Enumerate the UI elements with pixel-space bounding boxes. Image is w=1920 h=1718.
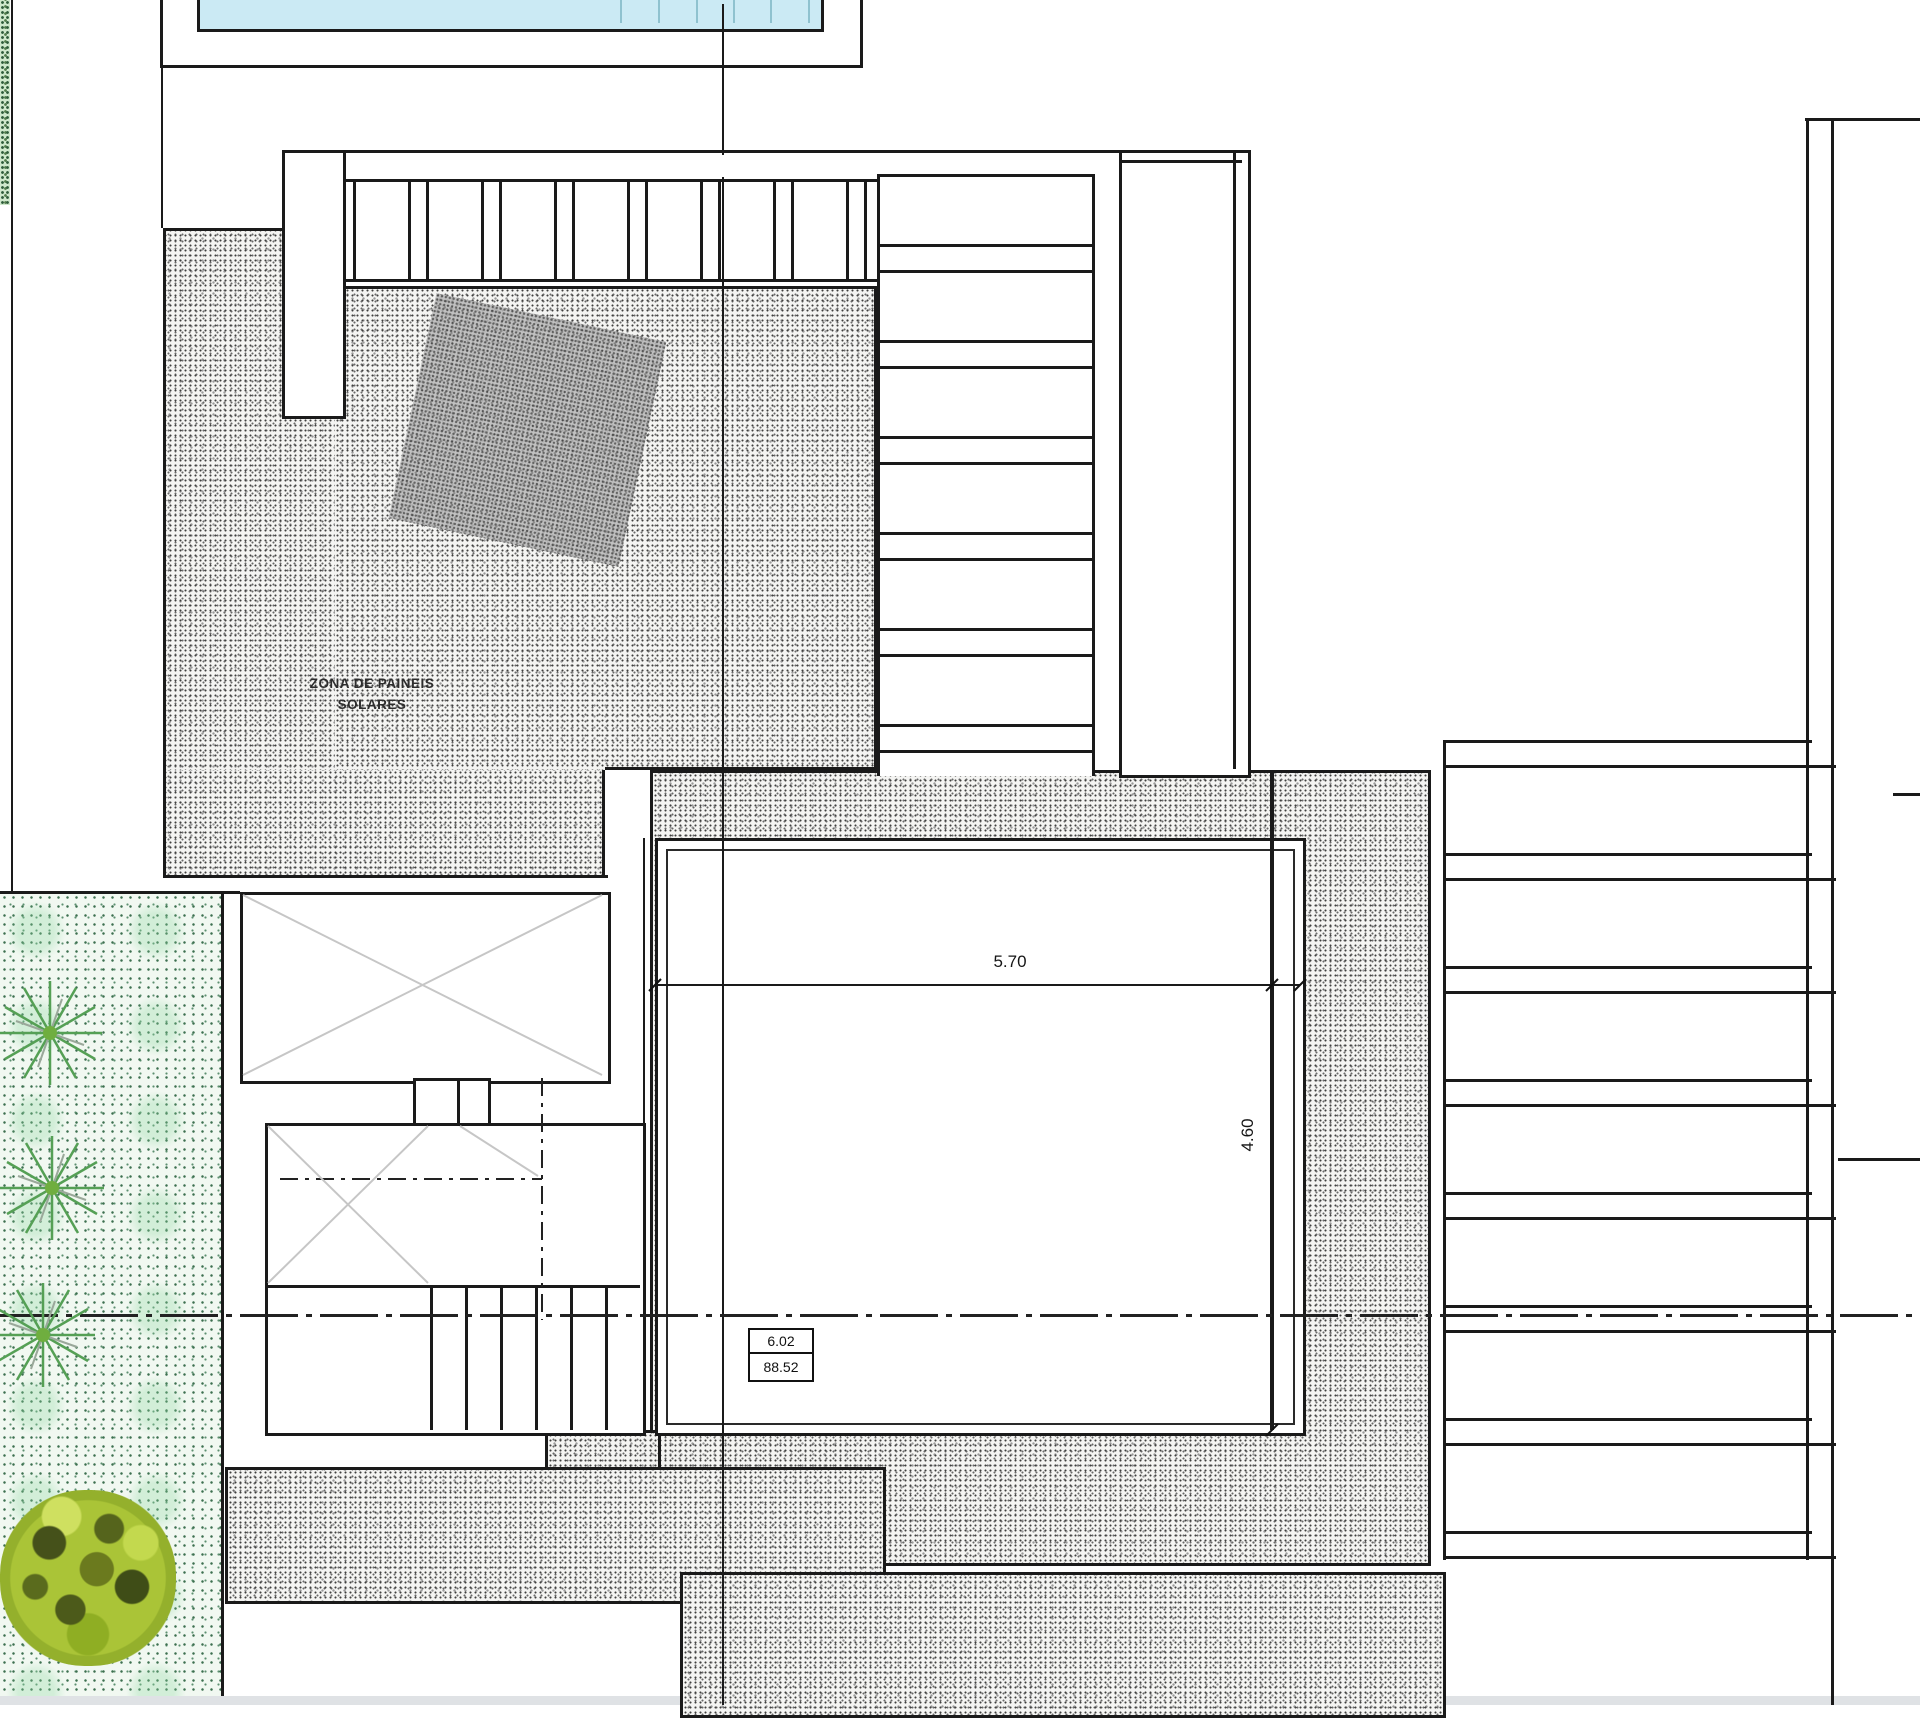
solar-zone-label-line1: ZONA DE PAINEIS	[272, 674, 472, 695]
louver-rail-left	[1443, 740, 1446, 1560]
pool-lane-line	[808, 0, 810, 23]
level-box-level: 88.52	[748, 1352, 814, 1382]
wall-line	[602, 770, 605, 878]
pool-lane-line	[770, 0, 772, 23]
axis-line-horizontal-short	[280, 1178, 542, 1180]
solar-zone-label-line2: SOLARES	[272, 695, 472, 716]
solar-zone-label: ZONA DE PAINEIS SOLARES	[272, 674, 472, 716]
wall-line	[338, 286, 880, 289]
gravel-area-bottom	[680, 1572, 1446, 1718]
axis-line-vertical	[722, 4, 724, 1705]
boundary-line-right	[1838, 1158, 1920, 1161]
solar-zone-gravel-lower	[163, 770, 605, 878]
dimension-height-label: 4.60	[1238, 1099, 1258, 1171]
plot-boundary-left	[11, 0, 13, 893]
wall-line	[1122, 160, 1242, 163]
wall-line	[161, 62, 163, 228]
garden-wall-line	[221, 892, 224, 1696]
boundary-line-right-short	[1893, 793, 1920, 796]
landing-slab	[1119, 150, 1251, 778]
wall-line	[163, 875, 608, 878]
pergola-slat-band	[335, 179, 877, 282]
louver-planks	[1443, 740, 1812, 1560]
dimension-line-width	[655, 984, 1300, 986]
pool	[197, 0, 824, 32]
solar-panel-patch	[389, 293, 667, 567]
pergola-top-line	[282, 150, 1248, 153]
hedge-strip	[0, 0, 10, 205]
louver-rail-right-outer	[1831, 118, 1834, 1705]
wall-line	[1233, 153, 1236, 769]
axis-line-vertical-short	[541, 1078, 543, 1320]
void-x-area	[240, 892, 611, 1084]
lower-stairs-treads	[430, 1288, 640, 1430]
room-glass-line	[1270, 772, 1274, 1430]
terrace-edge-line	[0, 891, 240, 894]
upper-stairs	[877, 174, 1095, 776]
wall-line	[163, 228, 166, 878]
boundary-line-top-right	[1805, 118, 1920, 121]
pool-lane-line	[658, 0, 660, 23]
axis-line-gap	[719, 155, 727, 177]
chimney-block	[282, 150, 346, 419]
pool-lane-line	[696, 0, 698, 23]
axis-line-horizontal	[0, 1314, 1920, 1317]
louver-rail-right-inner	[1806, 118, 1809, 1560]
dimension-width-label: 5.70	[930, 952, 1090, 972]
tree-icon	[0, 1490, 176, 1666]
level-box-area: 6.02	[748, 1328, 814, 1354]
pool-lane-line	[620, 0, 622, 23]
pool-lane-line	[733, 0, 735, 23]
